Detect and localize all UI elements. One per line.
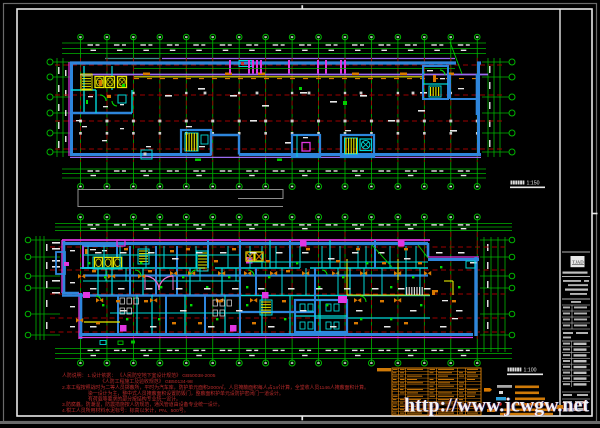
svg-text:3.防腐蠤，防潮湿，防震措施按人防规范，通风管道由设备专业统: 3.防腐蠤，防潮湿，防震措施按人防规范，通风管道由设备专业统一设计。 (62, 401, 223, 408)
svg-text:2.本工程按照战时为二等人员掷蔽所，平时为汽车库，防护单元面: 2.本工程按照战时为二等人员掷蔽所，平时为汽车库，防护单元面积2000㎡，人员掩… (62, 384, 369, 391)
svg-text:《人防工程施工及验收规范》 GB50134-98: 《人防工程施工及验收规范》 GB50134-98 (100, 378, 193, 385)
svg-text:4.柑工人员所用材料水泥标号：标高以米计，PN、500号。: 4.柑工人员所用材料水泥标号：标高以米计，PN、500号。 (62, 407, 189, 414)
svg-text:有荷载等要求的部分按结构专业统一设计。: 有荷载等要求的部分按结构专业统一设计。 (88, 395, 181, 402)
svg-text:1:150: 1:150 (527, 181, 540, 187)
svg-text:人防说明： 1.设计依据： 《人民防空地下室设计规范》 GB: 人防说明： 1.设计依据： 《人民防空地下室设计规范》 GB50038-2005 (62, 372, 216, 379)
svg-text:1:100: 1:100 (524, 368, 537, 374)
svg-text:http://www.jcwgw.net: http://www.jcwgw.net (404, 395, 589, 417)
svg-text:TJAD: TJAD (572, 260, 584, 265)
svg-text:染一设计为主，整中式人员掩蔽面积设置防毁门，整蔽面积护单元设: 染一设计为主，整中式人员掩蔽面积设置防毁门，整蔽面积护单元设防护密闭门一道设计。 (88, 390, 284, 397)
